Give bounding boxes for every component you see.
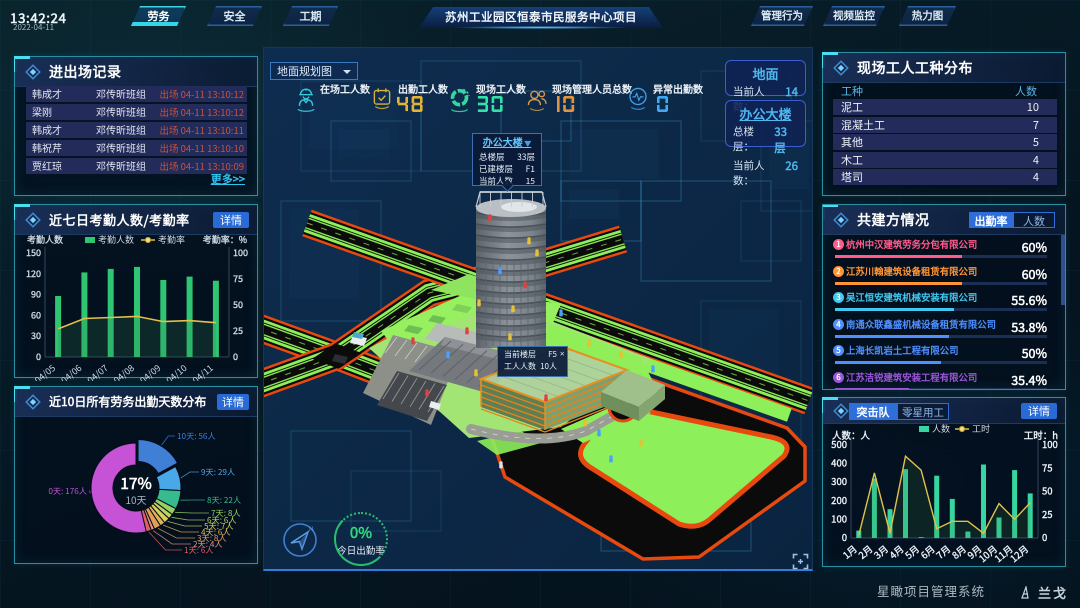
svg-text:1天: 6人: 1天: 6人 — [184, 544, 214, 556]
svg-text:工时：h: 工时：h — [1024, 428, 1059, 442]
svg-text:12月: 12月 — [1007, 542, 1031, 566]
svg-text:0: 0 — [1042, 530, 1047, 544]
svg-text:8天: 22人: 8天: 22人 — [207, 494, 241, 506]
svg-text:考勤人数: 考勤人数 — [98, 233, 134, 246]
svg-text:90: 90 — [31, 288, 41, 301]
svg-text:9天: 29人: 9天: 29人 — [201, 466, 235, 478]
svg-text:人数: 人数 — [932, 422, 950, 435]
svg-text:04/07: 04/07 — [84, 361, 110, 381]
svg-text:10天: 56人: 10天: 56人 — [177, 430, 216, 442]
svg-text:75: 75 — [233, 272, 243, 285]
svg-text:考勤率: 考勤率 — [158, 233, 185, 246]
svg-text:50: 50 — [232, 298, 243, 311]
svg-text:17%: 17% — [120, 472, 151, 494]
svg-text:人数：人: 人数：人 — [832, 428, 871, 442]
svg-text:10天: 10天 — [125, 492, 146, 507]
svg-text:04/10: 04/10 — [163, 361, 189, 381]
svg-text:400: 400 — [830, 456, 847, 470]
svg-text:工时: 工时 — [972, 422, 990, 435]
svg-text:04/05: 04/05 — [32, 361, 58, 381]
svg-text:50: 50 — [1041, 484, 1053, 498]
svg-text:75: 75 — [1042, 460, 1053, 474]
svg-text:考勤率：%: 考勤率：% — [203, 233, 248, 246]
svg-text:150: 150 — [26, 246, 41, 259]
svg-text:60: 60 — [31, 308, 41, 321]
svg-text:04/08: 04/08 — [111, 361, 137, 381]
svg-text:25: 25 — [1042, 507, 1053, 521]
svg-text:300: 300 — [831, 474, 847, 488]
svg-text:100: 100 — [233, 246, 248, 259]
svg-text:0天: 176人: 0天: 176人 — [48, 485, 87, 497]
svg-text:100: 100 — [831, 511, 847, 525]
svg-text:0: 0 — [233, 350, 238, 363]
svg-text:0: 0 — [842, 530, 847, 544]
svg-text:30: 30 — [31, 329, 41, 342]
svg-text:N: N — [309, 524, 313, 533]
svg-text:25: 25 — [233, 324, 243, 337]
svg-text:考勤人数: 考勤人数 — [27, 233, 64, 246]
svg-text:200: 200 — [831, 493, 847, 507]
svg-text:0: 0 — [36, 350, 41, 363]
svg-text:120: 120 — [26, 267, 41, 280]
svg-text:04/11: 04/11 — [189, 361, 215, 381]
svg-text:04/09: 04/09 — [137, 361, 163, 381]
svg-text:04/06: 04/06 — [58, 361, 84, 381]
